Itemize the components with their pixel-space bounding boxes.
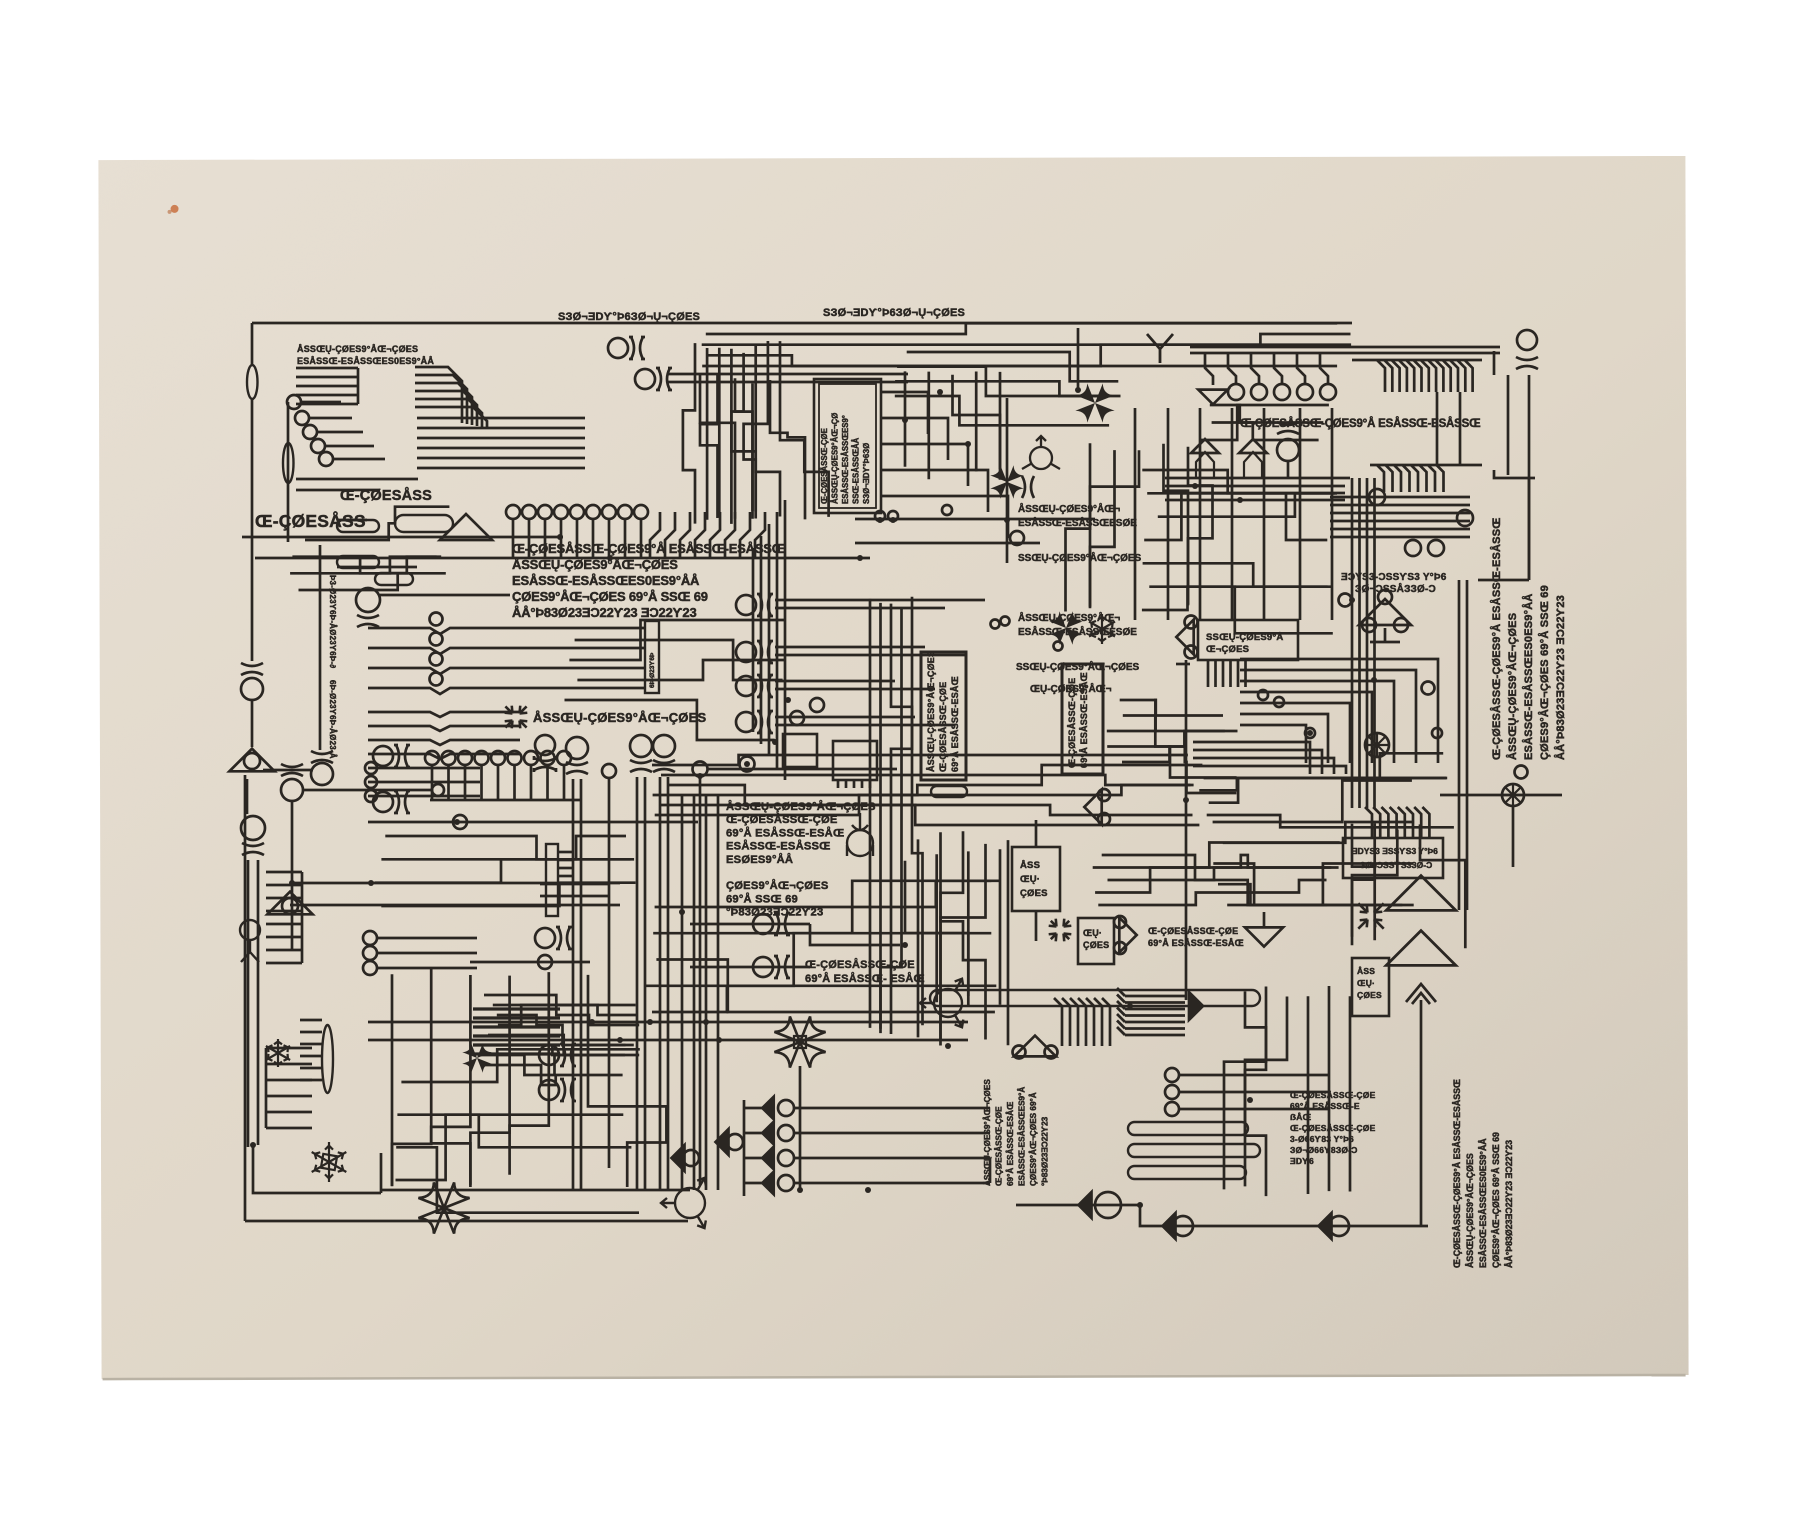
svg-text:ŒŲ·: ŒŲ· bbox=[1020, 874, 1040, 885]
svg-text:ÅSS: ÅSS bbox=[1357, 966, 1375, 976]
svg-text:ÅSSŒŲ-ÇØES9°ÅŒ¬: ÅSSŒŲ-ÇØES9°ÅŒ¬ bbox=[1018, 502, 1120, 515]
svg-text:ÅÅ°Þ83Ø23ƎƆ22Ƴ23 ƎƆ22Ƴ23: ÅÅ°Þ83Ø23ƎƆ22Ƴ23 ƎƆ22Ƴ23 bbox=[1554, 595, 1567, 760]
svg-text:ESÅSSŒ-ESÅSSŒES0ES9°ÅÅ: ESÅSSŒ-ESÅSSŒES0ES9°ÅÅ bbox=[512, 573, 700, 588]
svg-text:Œ-ÇØESÅSSŒ-ÇØE: Œ-ÇØESÅSSŒ-ÇØE bbox=[938, 682, 948, 772]
svg-text:ÅSSŒŲ-ÇØES9°ÅŒ¬ÇØES: ÅSSŒŲ-ÇØES9°ÅŒ¬ÇØES bbox=[726, 800, 876, 813]
svg-text:SЗØ¬ƎDƳ°Þ6ЗØ¬Ų¬ÇØES: SЗØ¬ƎDƳ°Þ6ЗØ¬Ų¬ÇØES bbox=[823, 307, 965, 319]
svg-text:Œ-ÇØESÅSSŒ-ÇØES9°Å ESÅSSŒ-ESÅS: Œ-ÇØESÅSSŒ-ÇØES9°Å ESÅSSŒ-ESÅSSŒ bbox=[1452, 1079, 1462, 1268]
svg-text:ÅSSŒŲ-ÇØES9°ÅŒ¬ÇØES: ÅSSŒŲ-ÇØES9°ÅŒ¬ÇØES bbox=[1465, 1153, 1475, 1268]
svg-text:ÅSS: ÅSS bbox=[1020, 860, 1040, 871]
svg-text:Œ-ÇØESÅSSŒ-ÇØE: Œ-ÇØESÅSSŒ-ÇØE bbox=[805, 958, 915, 971]
svg-text:ÇØES9°ÅŒ¬ÇØES 69°Å SSŒ 69: ÇØES9°ÅŒ¬ÇØES 69°Å SSŒ 69 bbox=[1491, 1132, 1501, 1268]
svg-text:ÇØES: ÇØES bbox=[1020, 888, 1048, 899]
svg-text:ЗØ¬ƆSSÅЗЗØ-Ɔ: ЗØ¬ƆSSÅЗЗØ-Ɔ bbox=[1355, 582, 1436, 595]
svg-text:ESÅSSŒ-ESÅSSŒ: ESÅSSŒ-ESÅSSŒ bbox=[726, 840, 831, 853]
svg-text:ESÅSSŒ-ESÅSSŒES0ES9°ÅÅ: ESÅSSŒ-ESÅSSŒES0ES9°ÅÅ bbox=[1478, 1138, 1488, 1268]
svg-text:ÇØES: ÇØES bbox=[1357, 990, 1382, 1000]
svg-text:ESØES9°ÅÅ: ESØES9°ÅÅ bbox=[726, 853, 793, 866]
svg-text:ƎDYS3 ƎSSƳS3 Y°Þ6: ƎDYS3 ƎSSƳS3 Y°Þ6 bbox=[1352, 846, 1438, 856]
svg-text:Œ-ÇØESÅSSŒ-ÇØE: Œ-ÇØESÅSSŒ-ÇØE bbox=[994, 1106, 1004, 1186]
svg-text:ESÅSSŒ-ESÅSSŒES9°: ESÅSSŒ-ESÅSSŒES9° bbox=[841, 415, 850, 504]
svg-text:Œ¬ÇØES: Œ¬ÇØES bbox=[1206, 644, 1249, 655]
svg-text:SЗØ¬ƎDƳ°Þ6ЗØ¬Ų¬ÇØES: SЗØ¬ƎDƳ°Þ6ЗØ¬Ų¬ÇØES bbox=[558, 311, 700, 323]
svg-text:SSŒŲ-ÇØES9°ÅŒ¬ÇØES: SSŒŲ-ÇØES9°ÅŒ¬ÇØES bbox=[1018, 551, 1142, 564]
svg-text:ÅSSŒŲ-ÇØES9°ÅŒ¬ÇØES: ÅSSŒŲ-ÇØES9°ÅŒ¬ÇØES bbox=[982, 1079, 992, 1186]
svg-text:ÇØES9°ÅŒ¬ÇØES 69°Å SSŒ 69: ÇØES9°ÅŒ¬ÇØES 69°Å SSŒ 69 bbox=[512, 589, 708, 604]
svg-text:6Þ-Ø23Ƴ6Þ-ÅØ23-Å: 6Þ-Ø23Ƴ6Þ-ÅØ23-Å bbox=[328, 680, 337, 759]
svg-text:ESÅSSŒ-ESÅSSŒES0ES9°ÅÅ: ESÅSSŒ-ESÅSSŒES0ES9°ÅÅ bbox=[1522, 593, 1535, 760]
svg-text:ÇØES9°ÅŒ¬ÇØES 69°Å SSŒ 69: ÇØES9°ÅŒ¬ÇØES 69°Å SSŒ 69 bbox=[1538, 585, 1551, 760]
svg-text:Œ-ÇØESÅSSŒ-ÇØES9°Å ESÅSSŒ-ESÅS: Œ-ÇØESÅSSŒ-ÇØES9°Å ESÅSSŒ-ESÅSSŒ bbox=[1490, 518, 1503, 760]
svg-text:69°Å SSŒ 69: 69°Å SSŒ 69 bbox=[726, 892, 798, 905]
svg-text:Œ-ÇØESÅSSŒ-ÇØES9°Å ESÅSSŒ-ESÅS: Œ-ÇØESÅSSŒ-ÇØES9°Å ESÅSSŒ-ESÅSSŒ bbox=[512, 541, 785, 556]
svg-text:69°Å ESÅSSŒ-ESÅŒ: 69°Å ESÅSSŒ-ESÅŒ bbox=[1005, 1102, 1015, 1186]
svg-text:Œ-ÇØESÅSSŒ-ÇØE: Œ-ÇØESÅSSŒ-ÇØE bbox=[1290, 1123, 1376, 1133]
svg-text:ÅSSŒŲ-ÇØES9°ÅŒ¬ÇØ: ÅSSŒŲ-ÇØES9°ÅŒ¬ÇØ bbox=[831, 413, 840, 504]
svg-text:ƎDƳ6: ƎDƳ6 bbox=[1290, 1156, 1314, 1166]
svg-text:ЗØ¬Ø66Ƴ8ЗØ-Ɔ: ЗØ¬Ø66Ƴ8ЗØ-Ɔ bbox=[1290, 1145, 1358, 1155]
svg-text:ŒŲ·: ŒŲ· bbox=[1357, 978, 1375, 988]
svg-text:Œ-ÇØESÅSSŒ-ÇØE: Œ-ÇØESÅSSŒ-ÇØE bbox=[1290, 1090, 1376, 1100]
svg-text:SSŒŲ-ÇØES9°ÅŒ¬ÇØES: SSŒŲ-ÇØES9°ÅŒ¬ÇØES bbox=[1016, 660, 1140, 673]
svg-text:SSŒ-ESÅSSŒÅÅ: SSŒ-ESÅSSŒÅÅ bbox=[852, 437, 861, 504]
svg-text:ÅÅ°Þ83Ø23ƎƆ22Ƴ23 ƎƆ22Ƴ23: ÅÅ°Þ83Ø23ƎƆ22Ƴ23 ƎƆ22Ƴ23 bbox=[512, 605, 696, 620]
svg-text:ƎƆYS3-ƆSSƳS3 Y°Þ6: ƎƆYS3-ƆSSƳS3 Y°Þ6 bbox=[1341, 572, 1447, 583]
svg-text:ÇØES9°ÅŒ¬ÇØES 69°Å: ÇØES9°ÅŒ¬ÇØES 69°Å bbox=[1028, 1092, 1038, 1186]
svg-text:Œ-ÇØESÅSSŒ-ÇØE: Œ-ÇØESÅSSŒ-ÇØE bbox=[1148, 926, 1238, 936]
svg-text:6Þ-Ø23Ƴ6Þ: 6Þ-Ø23Ƴ6Þ bbox=[649, 652, 656, 688]
svg-text:ÇØES: ÇØES bbox=[1083, 940, 1109, 950]
svg-text:SЗØ¬ƎDƳ°Þ6ЗØ: SЗØ¬ƎDƳ°Þ6ЗØ bbox=[862, 443, 871, 504]
svg-text:69°Å ESÅSSŒ-ESÅŒ: 69°Å ESÅSSŒ-ESÅŒ bbox=[1148, 938, 1244, 948]
svg-text:°Þ83Ø23ƎƆ22Ƴ23: °Þ83Ø23ƎƆ22Ƴ23 bbox=[1041, 1116, 1050, 1186]
svg-text:69°Å ESÅSSŒ- ESÅŒ: 69°Å ESÅSSŒ- ESÅŒ bbox=[805, 972, 925, 985]
svg-text:ESÅSSŒ-ESÅSSŒESØE: ESÅSSŒ-ESÅSSŒESØE bbox=[1018, 625, 1137, 638]
svg-text:ESÅSSŒ-ESÅSSŒES0ES9°ÅÅ: ESÅSSŒ-ESÅSSŒES0ES9°ÅÅ bbox=[297, 356, 434, 366]
svg-text:69°Å ESÅSSŒ-ESÅŒ: 69°Å ESÅSSŒ-ESÅŒ bbox=[1079, 672, 1089, 768]
svg-text:69°Å ESÅSSŒ-ESÅŒ: 69°Å ESÅSSŒ-ESÅŒ bbox=[726, 826, 844, 839]
svg-text:ŒŲ·: ŒŲ· bbox=[1083, 928, 1102, 938]
svg-text:ESÅSSŒ-ESÅSSŒES9°Å: ESÅSSŒ-ESÅSSŒES9°Å bbox=[1017, 1087, 1027, 1186]
svg-text:ÅSSŒŲ-ÇØES9°ÅŒ¬ÇØES: ÅSSŒŲ-ÇØES9°ÅŒ¬ÇØES bbox=[533, 710, 706, 725]
svg-text:ÅSSŒŲ-ÇØES9°ÅŒ¬ÇØES: ÅSSŒŲ-ÇØES9°ÅŒ¬ÇØES bbox=[297, 344, 418, 354]
svg-text:3-Ø66Ƴ83 Y°Þ6: 3-Ø66Ƴ83 Y°Þ6 bbox=[1290, 1134, 1354, 1144]
svg-text:ÇØES9°ÅŒ¬ÇØES: ÇØES9°ÅŒ¬ÇØES bbox=[726, 879, 829, 892]
svg-text:ÅSSŒŲ-ÇØES9°ÅŒ¬ÇØES: ÅSSŒŲ-ÇØES9°ÅŒ¬ÇØES bbox=[1506, 613, 1519, 760]
svg-text:ÅÅ°Þ83Ø23ƎƆ22Ƴ23 ƎƆ22Ƴ23: ÅÅ°Þ83Ø23ƎƆ22Ƴ23 ƎƆ22Ƴ23 bbox=[1504, 1140, 1514, 1268]
